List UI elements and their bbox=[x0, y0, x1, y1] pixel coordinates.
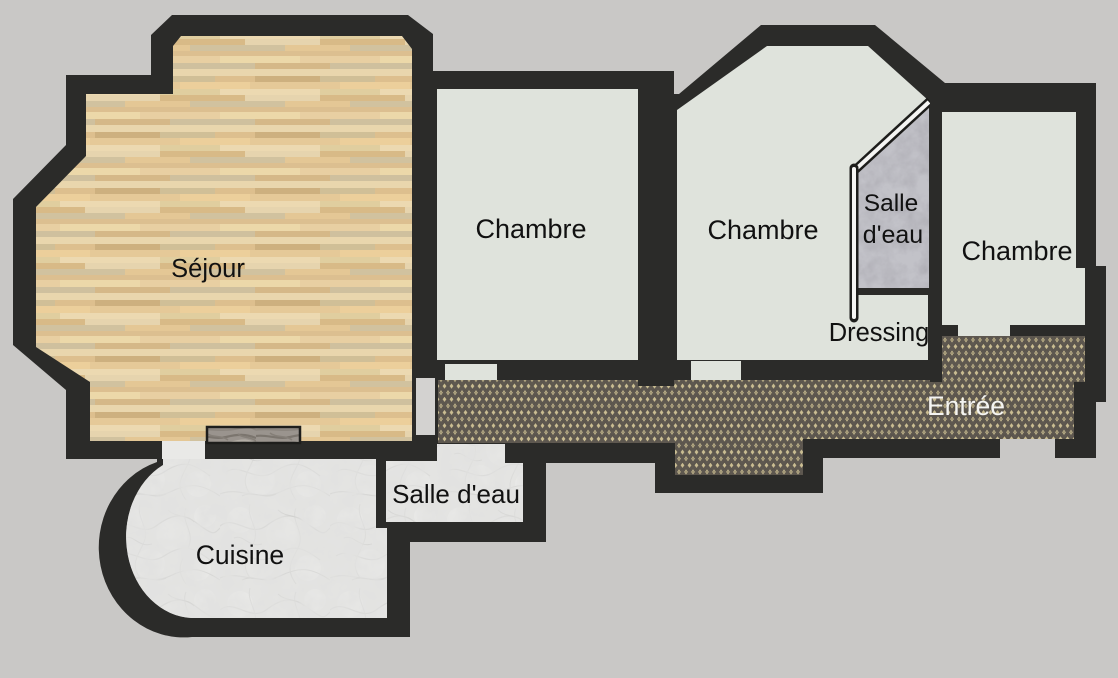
svg-text:Chambre: Chambre bbox=[475, 214, 586, 244]
svg-text:Salle: Salle bbox=[864, 190, 918, 217]
svg-text:Cuisine: Cuisine bbox=[196, 540, 284, 570]
svg-text:Chambre: Chambre bbox=[707, 215, 818, 245]
svg-text:Chambre: Chambre bbox=[961, 236, 1072, 266]
svg-text:d'eau: d'eau bbox=[863, 221, 923, 249]
svg-text:Entrée: Entrée bbox=[927, 391, 1005, 421]
svg-text:Salle d'eau: Salle d'eau bbox=[392, 479, 520, 509]
svg-text:Dressing: Dressing bbox=[829, 319, 930, 347]
svg-text:Séjour: Séjour bbox=[171, 255, 245, 283]
